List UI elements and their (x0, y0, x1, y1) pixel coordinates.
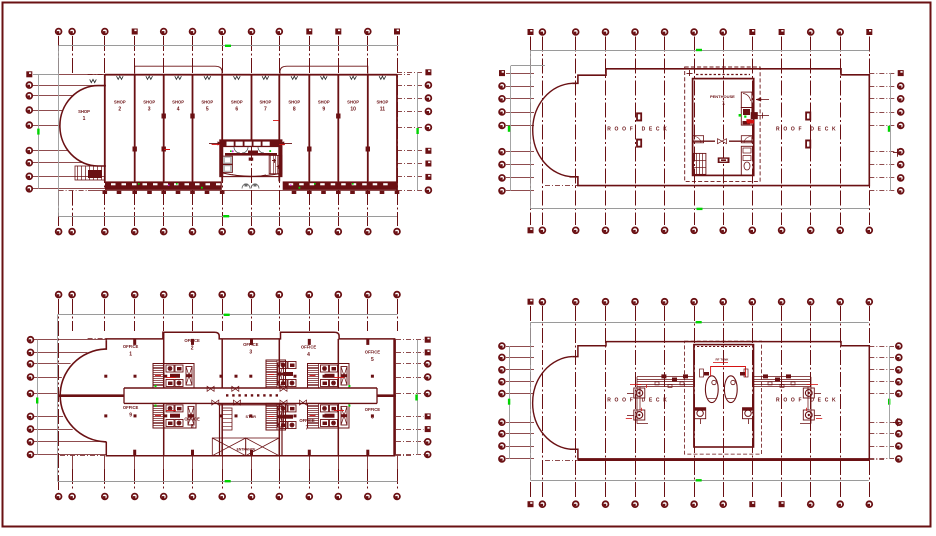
svg-text:OFFICE: OFFICE (243, 342, 259, 347)
svg-text:OFFICE: OFFICE (123, 405, 139, 410)
svg-text:2: 2 (191, 346, 194, 352)
svg-text:OFFICE: OFFICE (299, 418, 315, 423)
svg-text:ROOF DECK: ROOF DECK (776, 397, 839, 403)
svg-text:PENTHOUSE: PENTHOUSE (710, 94, 735, 99)
svg-text:OFFICE: OFFICE (123, 344, 139, 349)
svg-text:SHOP: SHOP (347, 100, 359, 105)
svg-text:1: 1 (129, 352, 132, 358)
svg-text:7: 7 (306, 426, 309, 432)
svg-text:5: 5 (371, 357, 374, 363)
svg-text:OFFICE: OFFICE (365, 350, 381, 355)
svg-text:5: 5 (206, 107, 209, 113)
svg-text:OFFICE: OFFICE (184, 338, 200, 343)
svg-text:SHOP: SHOP (201, 100, 213, 105)
svg-text:4: 4 (307, 352, 310, 358)
svg-text:11: 11 (380, 107, 386, 113)
svg-text:ROOF DECK: ROOF DECK (776, 127, 839, 133)
svg-text:SHOP: SHOP (288, 100, 300, 105)
svg-text:SHOP: SHOP (259, 100, 271, 105)
svg-text:6: 6 (371, 415, 374, 421)
svg-text:4: 4 (177, 107, 180, 113)
svg-text:SHOP: SHOP (78, 109, 90, 114)
svg-text:10: 10 (350, 107, 356, 113)
svg-text:SHOP: SHOP (143, 100, 155, 105)
svg-text:OFFICE: OFFICE (184, 417, 200, 422)
svg-text:RF TANK: RF TANK (716, 358, 730, 362)
svg-text:ROOF DECK: ROOF DECK (607, 397, 670, 403)
svg-text:ROOF DECK: ROOF DECK (607, 127, 670, 133)
svg-text:8: 8 (293, 107, 296, 113)
svg-text:OFFICE: OFFICE (301, 345, 317, 350)
svg-text:SHOP: SHOP (172, 100, 184, 105)
svg-text:7: 7 (264, 107, 267, 113)
svg-text:9: 9 (129, 413, 132, 419)
svg-text:SHOP: SHOP (318, 100, 330, 105)
svg-text:1: 1 (722, 101, 725, 107)
svg-text:6: 6 (235, 107, 238, 113)
svg-text:SHOP: SHOP (231, 100, 243, 105)
svg-text:3: 3 (148, 107, 151, 113)
svg-text:3: 3 (249, 350, 252, 356)
svg-text:ENTRANCE: ENTRANCE (237, 448, 257, 452)
svg-text:9: 9 (322, 107, 325, 113)
svg-text:1: 1 (83, 116, 86, 122)
svg-text:OFFICE: OFFICE (365, 407, 381, 412)
svg-text:8: 8 (191, 424, 194, 430)
svg-text:SHOP: SHOP (376, 100, 388, 105)
svg-text:2: 2 (118, 107, 121, 113)
svg-text:SHOP: SHOP (114, 100, 126, 105)
